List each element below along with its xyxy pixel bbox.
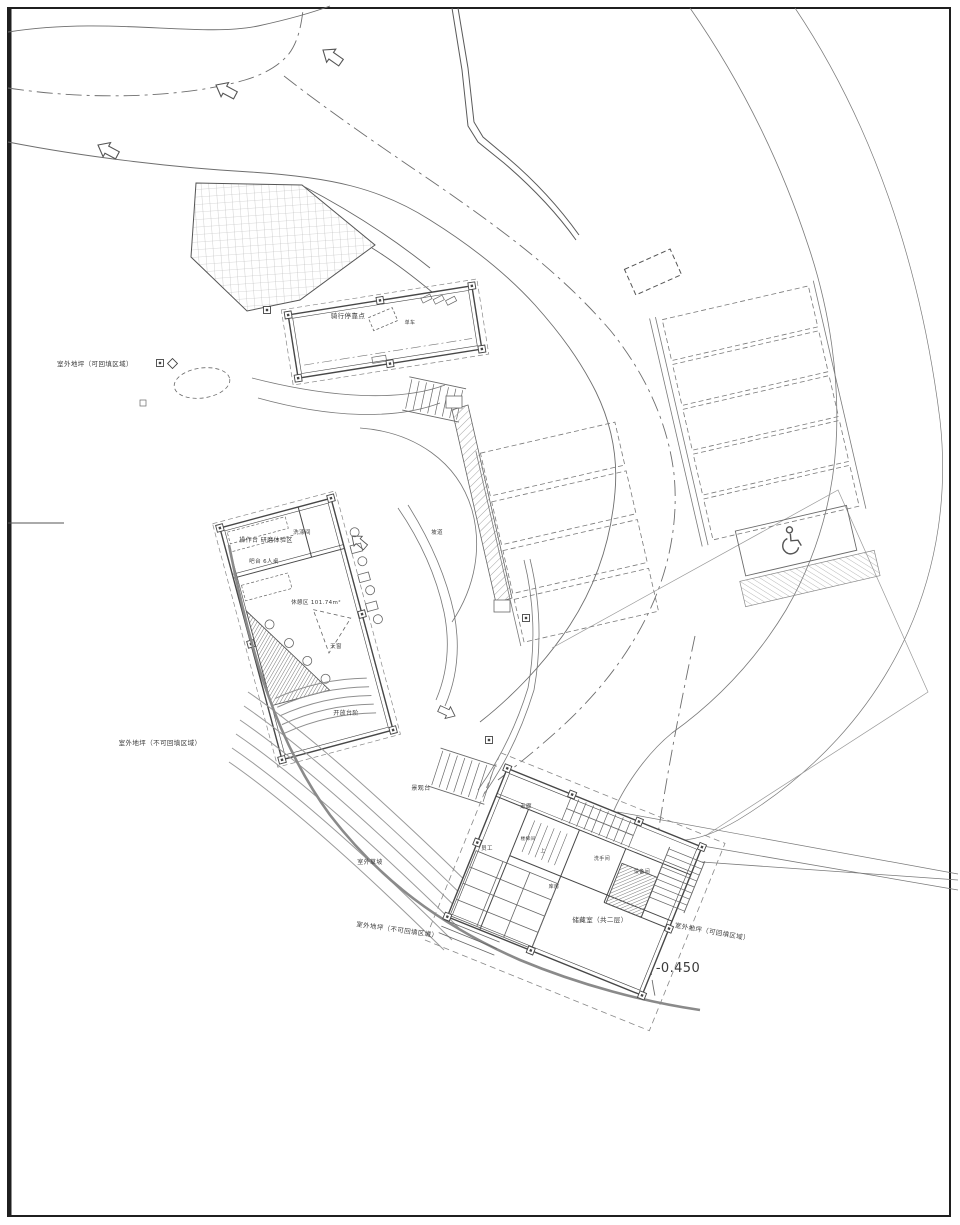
label-corridor: 走廊	[520, 802, 532, 810]
parking-accessible	[729, 502, 881, 607]
label-skylight: 天窗	[330, 642, 342, 650]
label-bike-note: 单车	[405, 319, 416, 326]
label-outdoor-nonfillable-left: 室外地坪（不可回填区域）	[119, 738, 202, 747]
road-right	[610, 8, 958, 890]
label-washroom: 洗手间	[594, 855, 610, 862]
garden-left	[8, 364, 232, 523]
label-lawn-slope: 室外草坡	[357, 858, 383, 866]
label-staff-room: 员工	[481, 845, 493, 852]
label-level-elevation: -0.450	[656, 961, 700, 976]
square-dot-marker	[157, 360, 164, 367]
label-open-steps: 开放台阶	[333, 709, 359, 717]
direction-arrow-icon	[436, 703, 457, 722]
site-plan-canvas: 室外地坪（可回填区域） 室外地坪（可回填区域） 室外地坪（不可回填区域） 室外地…	[0, 0, 960, 1225]
building-bike-stop	[281, 279, 488, 385]
drawing-sheet: 室外地坪（可回填区域） 室外地坪（可回填区域） 室外地坪（不可回填区域） 室外地…	[0, 0, 960, 1225]
parcel-boundary	[552, 490, 928, 836]
label-equipment-room: 设备间	[634, 868, 650, 875]
parking-right	[650, 281, 866, 547]
label-view-platform: 景观台	[411, 784, 430, 792]
square-dot-marker	[486, 737, 493, 744]
label-operation-area: 操作台 研磨体验区	[239, 536, 293, 544]
square-dot-marker	[264, 307, 271, 314]
sheet-border	[8, 8, 950, 1216]
label-bar-counter: 吧台 6人桌	[249, 557, 279, 565]
building-pavilion	[213, 488, 413, 768]
label-storage-loft: 储藏室（共二层）	[572, 915, 627, 924]
square-dot-marker	[523, 615, 530, 622]
label-outdoor-nonfillable-bottom: 室外地坪（不可回填区域）	[356, 919, 439, 939]
label-outdoor-fillable-right: 室外地坪（可回填区域）	[674, 921, 750, 943]
stairs-lower	[428, 748, 496, 804]
direction-arrow-icon	[212, 78, 239, 102]
label-outdoor-fillable-left: 室外地坪（可回填区域）	[57, 359, 133, 368]
building-service	[425, 753, 725, 1031]
label-storeroom: 库房	[549, 883, 560, 890]
utility-pad-outline	[624, 249, 681, 295]
ramp	[446, 396, 512, 612]
label-bike-stop: 骑行停靠点	[331, 311, 366, 320]
direction-arrow-icon	[318, 43, 345, 69]
label-rest-area: 休憩区 101.74m²	[291, 598, 341, 606]
label-up-mark: 上	[541, 847, 546, 854]
label-stair-room: 楼梯间	[521, 835, 536, 842]
wheelchair-icon	[779, 525, 803, 555]
label-washing-room: 洗涤间	[293, 528, 311, 536]
retaining-wall-top	[452, 8, 579, 240]
diamond-marker	[168, 359, 178, 369]
label-ramp: 坡道	[431, 528, 443, 536]
